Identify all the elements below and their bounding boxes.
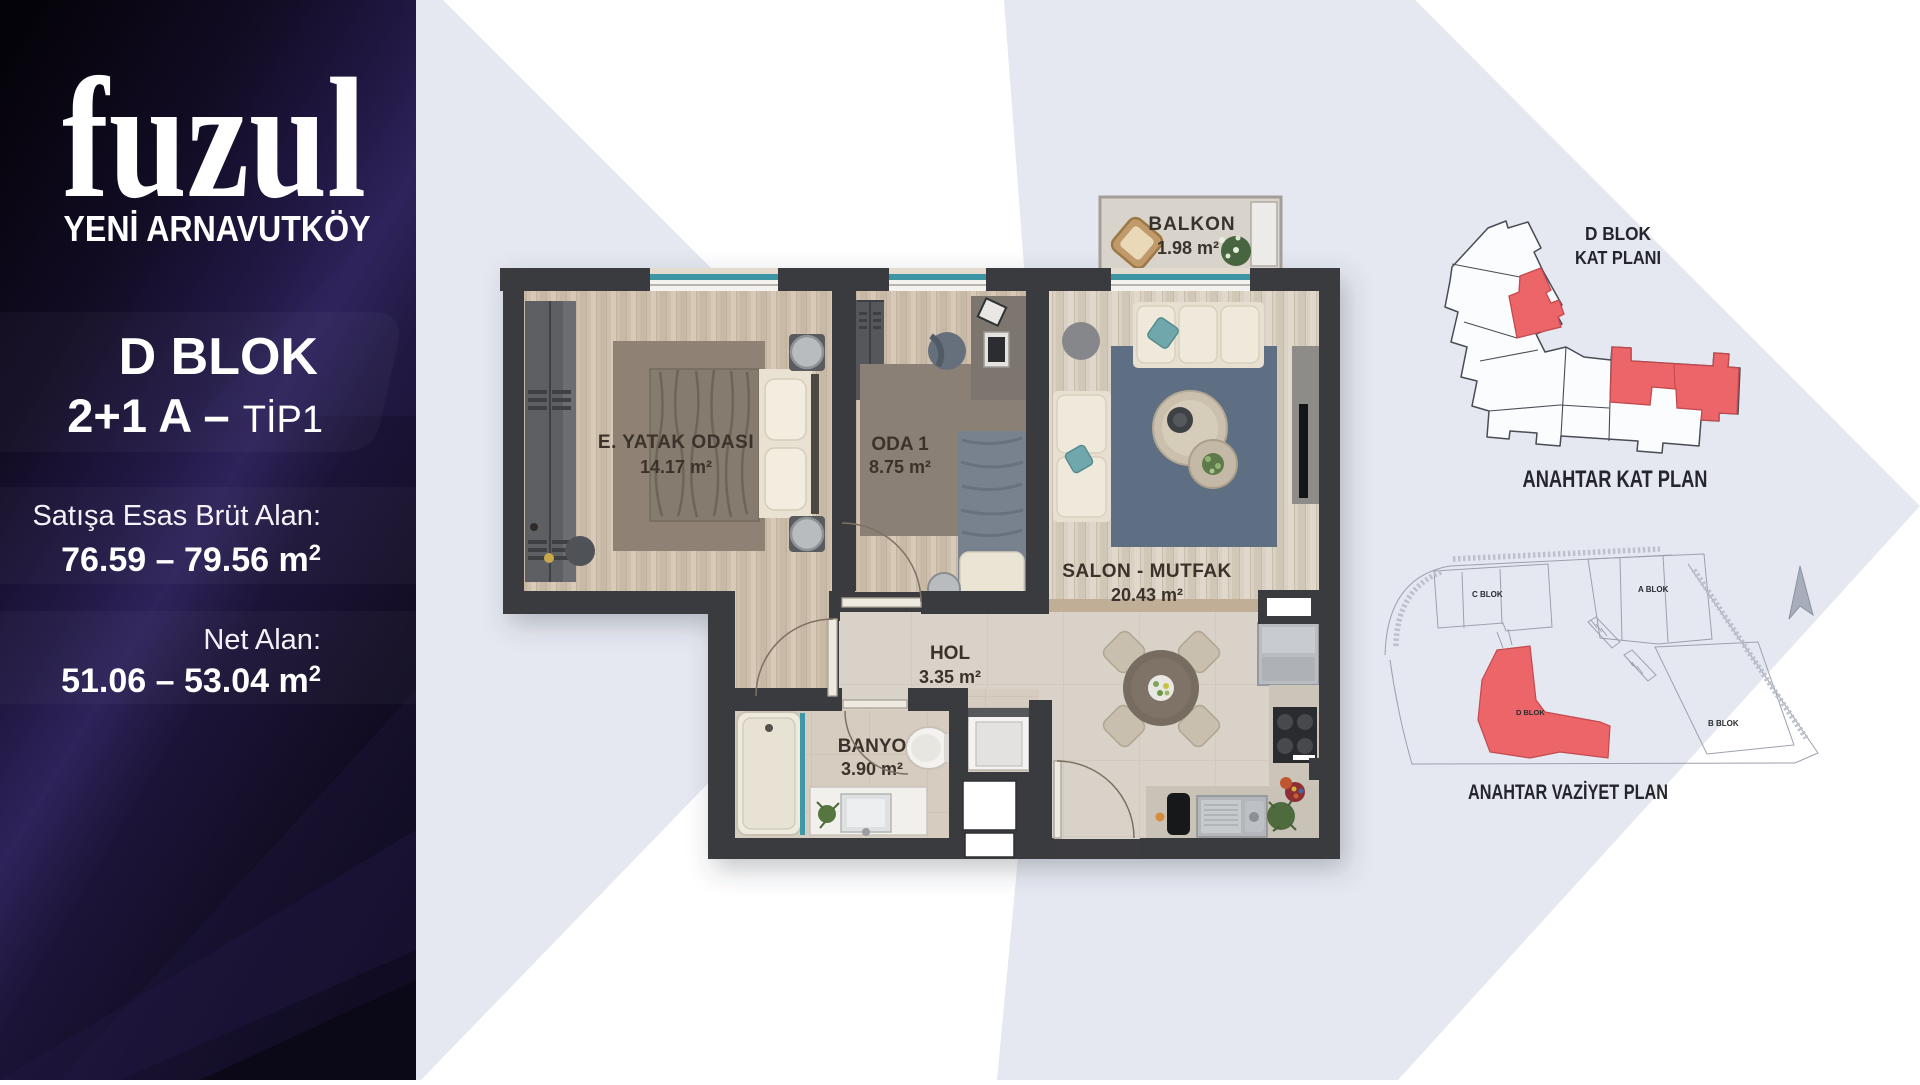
svg-text:3.35 m²: 3.35 m² [919, 667, 981, 687]
svg-text:KAT PLANI: KAT PLANI [1575, 248, 1661, 268]
svg-text:D BLOK: D BLOK [1516, 708, 1545, 717]
svg-text:ODA 1: ODA 1 [871, 434, 929, 455]
svg-text:Net Alan:: Net Alan: [203, 624, 321, 656]
svg-text:ANAHTAR KAT PLAN: ANAHTAR KAT PLAN [1523, 466, 1708, 493]
svg-text:14.17 m²: 14.17 m² [640, 457, 712, 477]
svg-text:Satışa Esas Brüt Alan:: Satışa Esas Brüt Alan: [32, 500, 321, 532]
svg-text:D BLOK: D BLOK [119, 328, 319, 386]
svg-text:1.98 m²: 1.98 m² [1157, 238, 1219, 258]
svg-text:B BLOK: B BLOK [1708, 719, 1739, 728]
svg-text:HOL: HOL [930, 643, 971, 664]
svg-text:YENİ ARNAVUTKÖY: YENİ ARNAVUTKÖY [64, 208, 371, 249]
svg-text:D BLOK: D BLOK [1585, 224, 1651, 244]
svg-text:51.06 – 53.04 m2: 51.06 – 53.04 m2 [61, 661, 321, 700]
svg-text:BANYO: BANYO [838, 736, 907, 757]
svg-text:SALON - MUTFAK: SALON - MUTFAK [1062, 561, 1232, 582]
svg-text:20.43 m²: 20.43 m² [1111, 585, 1183, 605]
svg-text:fuzul: fuzul [62, 44, 366, 234]
svg-text:ANAHTAR VAZİYET PLAN: ANAHTAR VAZİYET PLAN [1468, 781, 1668, 804]
svg-text:E. YATAK ODASI: E. YATAK ODASI [598, 432, 754, 453]
svg-text:8.75 m²: 8.75 m² [869, 457, 931, 477]
svg-text:C BLOK: C BLOK [1472, 590, 1503, 599]
svg-text:76.59 – 79.56 m2: 76.59 – 79.56 m2 [61, 540, 321, 579]
svg-text:BALKON: BALKON [1148, 214, 1235, 235]
svg-text:A BLOK: A BLOK [1638, 585, 1669, 594]
